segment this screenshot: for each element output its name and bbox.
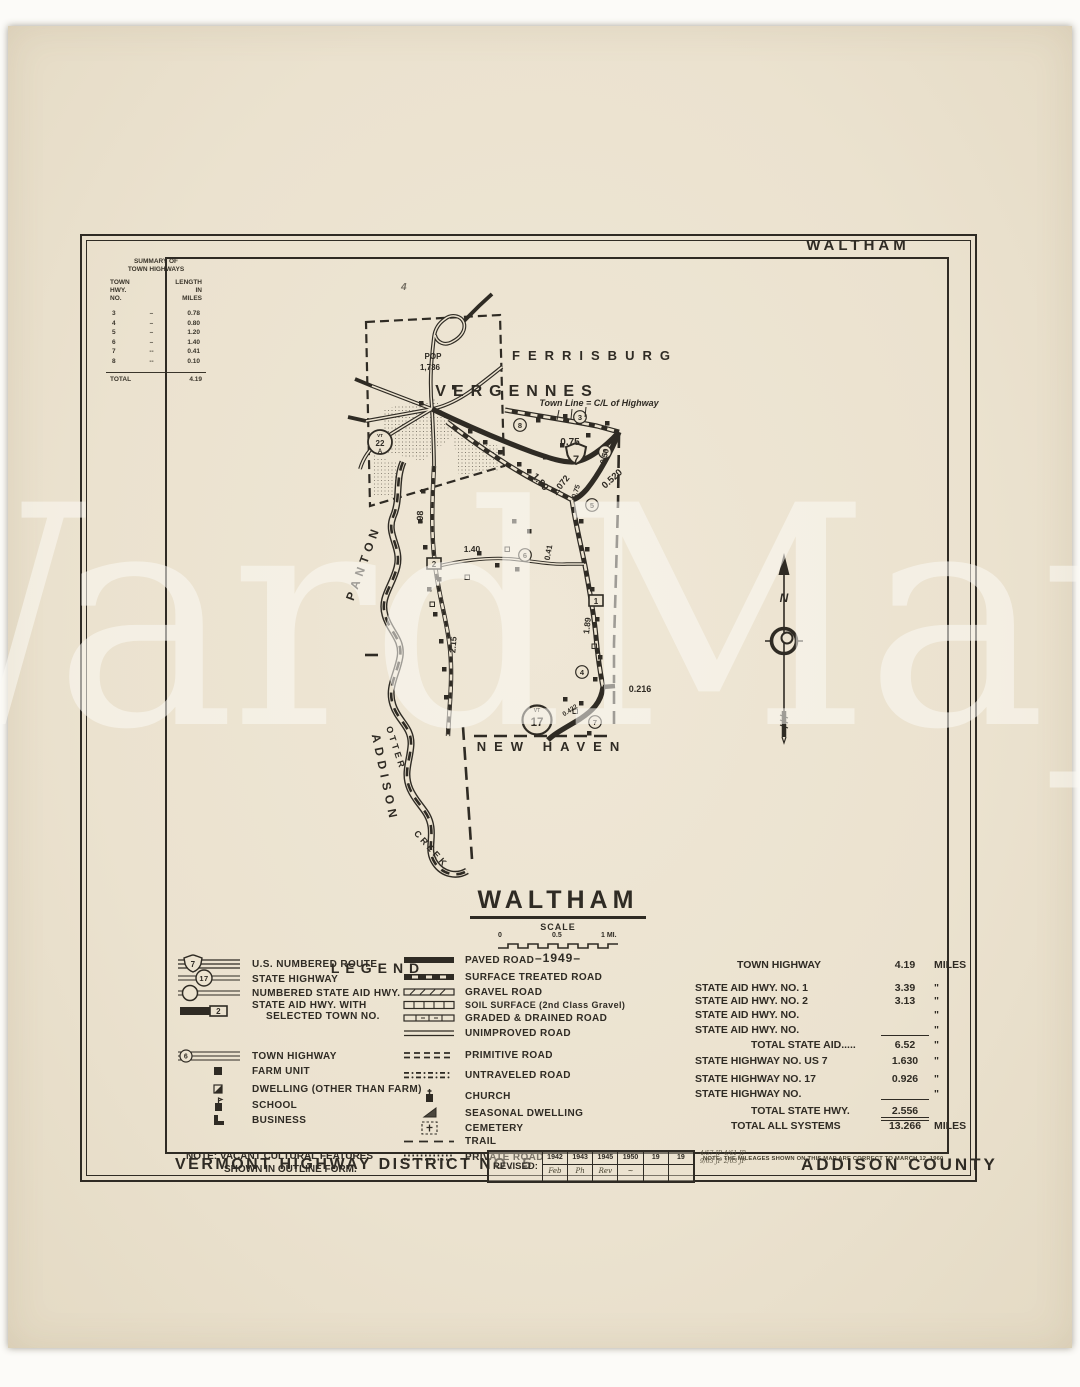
county-title: ADDISON COUNTY	[801, 1155, 998, 1175]
scale-bar-line	[496, 941, 620, 950]
mileage-row: STATE HIGHWAY NO. 170.926"	[695, 1073, 973, 1085]
svg-text:0.422: 0.422	[561, 703, 579, 718]
route-markers: 7 VT 17 VT 22 A 1 2	[368, 430, 603, 735]
mileage-row: TOWN HIGHWAY4.19MILES	[695, 959, 973, 971]
legend-item-trail: TRAIL	[400, 1134, 496, 1148]
svg-text:1: 1	[594, 597, 599, 606]
mileage-row: STATE HIGHWAY NO."	[695, 1088, 973, 1100]
legend-item-graded-drained: GRADED & DRAINED ROAD	[400, 1011, 607, 1025]
legend-item-seasonal-dwelling: SEASONAL DWELLING	[400, 1106, 583, 1120]
legend-item-primitive: PRIMITIVE ROAD	[400, 1048, 553, 1062]
svg-text:0.75: 0.75	[560, 437, 580, 448]
legend-item-dwelling: DWELLING (OTHER THAN FARM)	[178, 1082, 422, 1096]
legend-item-soil-surface: SOIL SURFACE (2nd Class Gravel)	[400, 998, 625, 1012]
svg-text:VT: VT	[534, 708, 540, 714]
svg-text:22: 22	[376, 439, 385, 448]
legend-item-state-aid-selected: 2 STATE AID HWY. WITHSELECTED TOWN NO.	[178, 1000, 380, 1022]
paved-road-symbol	[400, 953, 456, 967]
mileage-total-row: TOTAL STATE HWY.2.556	[695, 1105, 973, 1121]
svg-text:2: 2	[216, 1007, 221, 1016]
svg-text:1.40: 1.40	[464, 544, 481, 554]
unimproved-road-symbol	[400, 1026, 456, 1040]
mileage-row: STATE AID HWY. NO."	[695, 1009, 973, 1021]
svg-text:1.89: 1.89	[529, 471, 550, 493]
primitive-road-symbol	[400, 1048, 456, 1062]
corner-town-label: WALTHAM	[748, 237, 968, 254]
svg-text:7: 7	[191, 960, 196, 969]
svg-text:.98: .98	[415, 510, 425, 523]
svg-text:0.520: 0.520	[600, 467, 625, 491]
svg-text:VT: VT	[377, 433, 383, 438]
svg-text:2: 2	[432, 560, 437, 569]
svg-text:2.15: 2.15	[447, 636, 458, 654]
trail-symbol	[400, 1134, 456, 1148]
scanned-map-page: WALTHAM SUMMARY OF TOWN HIGHWAYS TOWNHWY…	[0, 0, 1080, 1387]
church-icon	[400, 1088, 456, 1104]
svg-text:6: 6	[184, 1054, 188, 1061]
svg-text:FERRISBURG: FERRISBURG	[512, 348, 678, 363]
mileage-total-row: TOTAL STATE AID.....6.52"	[695, 1039, 973, 1051]
revision-table: 1942Feb 1943Ph 1945Rev 1950~ 19 19	[542, 1152, 693, 1181]
svg-text:0.41: 0.41	[543, 544, 555, 561]
legend-item-school: SCHOOL	[178, 1097, 297, 1113]
vacant-feature-squares	[430, 547, 597, 714]
svg-text:5: 5	[590, 501, 594, 510]
legend-item-gravel: GRAVEL ROAD	[400, 985, 542, 999]
legend-item-unimproved: UNIMPROVED ROAD	[400, 1026, 571, 1040]
legend-item-business: BUSINESS	[178, 1113, 306, 1127]
svg-text:7: 7	[573, 454, 579, 466]
business-icon	[178, 1113, 242, 1127]
school-icon	[178, 1097, 242, 1113]
legend-item-town-highway: 6 TOWN HIGHWAY	[178, 1046, 337, 1066]
legend-item-paved-road: PAVED ROAD	[400, 953, 534, 967]
mileage-row: STATE AID HWY. NO."	[695, 1024, 973, 1036]
surface-treated-symbol	[400, 970, 456, 984]
svg-text:N: N	[780, 591, 789, 605]
svg-text:1,736: 1,736	[420, 363, 441, 372]
scale-label: SCALE	[448, 922, 668, 932]
svg-text:17: 17	[199, 974, 208, 983]
town-highway-symbol-icon: 6	[178, 1046, 242, 1066]
gravel-road-symbol	[400, 985, 456, 999]
svg-text:6: 6	[523, 551, 527, 560]
svg-text:NEW HAVEN: NEW HAVEN	[477, 739, 627, 754]
revision-box: REVISED: 1942Feb 1943Ph 1945Rev 1950~ 19…	[487, 1150, 695, 1183]
mileage-total-row: TOTAL ALL SYSTEMS13.266MILES	[695, 1120, 973, 1132]
svg-text:7: 7	[593, 718, 597, 727]
dwelling-icon	[178, 1082, 242, 1096]
legend-item-surface-treated: SURFACE TREATED ROAD	[400, 970, 602, 984]
svg-text:17: 17	[531, 717, 544, 729]
svg-text:1.89: 1.89	[581, 617, 593, 635]
svg-text:3: 3	[578, 413, 582, 422]
scale-bar: 0 0.5 1 MI.	[496, 932, 620, 950]
svg-text:POP: POP	[425, 352, 443, 361]
mileage-row: STATE HIGHWAY NO. US 71.630"	[695, 1055, 973, 1067]
town-line-annotation: Town Line = C/L of Highway	[539, 398, 659, 408]
map-title: WALTHAM	[470, 886, 647, 919]
graded-drained-symbol	[400, 1011, 456, 1025]
legend-item-farm-unit: FARM UNIT	[178, 1064, 310, 1078]
farm-unit-icon	[178, 1064, 242, 1078]
handwritten-mark: 4	[400, 282, 407, 293]
north-arrow: N	[765, 553, 803, 743]
seasonal-dwelling-icon	[400, 1106, 456, 1120]
svg-text:0.216: 0.216	[629, 684, 652, 694]
legend-item-church: CHURCH	[400, 1088, 511, 1104]
untraveled-road-symbol	[400, 1068, 456, 1082]
soil-surface-symbol	[400, 998, 456, 1012]
mileage-row: STATE AID HWY. NO. 13.39"	[695, 982, 973, 994]
svg-text:A: A	[378, 449, 383, 455]
mileage-row: STATE AID HWY. NO. 23.13"	[695, 995, 973, 1007]
handwritten-revision-notes: 4/57 JP 4/61 JP 9/63 JP 2/63 JP	[700, 1150, 810, 1166]
revised-label: REVISED:	[489, 1161, 542, 1172]
svg-text:8: 8	[518, 421, 522, 430]
map-paper-sheet: WALTHAM SUMMARY OF TOWN HIGHWAYS TOWNHWY…	[8, 26, 1072, 1348]
district-title: VERMONT HIGHWAY DISTRICT NO. 5	[175, 1156, 534, 1174]
svg-text:PANTON: PANTON	[343, 523, 383, 603]
state-aid-selected-icon: 2	[178, 1001, 242, 1021]
legend-item-untraveled: UNTRAVELED ROAD	[400, 1068, 571, 1082]
